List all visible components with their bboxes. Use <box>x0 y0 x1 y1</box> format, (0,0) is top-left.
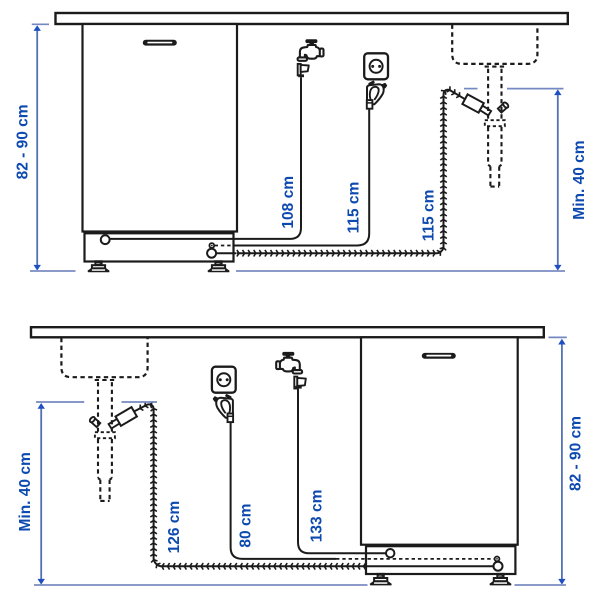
svg-text:82 - 90 cm: 82 - 90 cm <box>568 416 585 491</box>
svg-text:Min. 40 cm: Min. 40 cm <box>571 140 588 219</box>
svg-text:115 cm: 115 cm <box>421 190 438 242</box>
svg-text:80 cm: 80 cm <box>238 504 255 548</box>
svg-text:126 cm: 126 cm <box>166 501 183 554</box>
svg-text:115 cm: 115 cm <box>346 182 363 234</box>
svg-text:108 cm: 108 cm <box>280 176 297 229</box>
svg-text:82 - 90 cm: 82 - 90 cm <box>15 104 32 179</box>
svg-text:Min. 40 cm: Min. 40 cm <box>17 452 34 531</box>
svg-text:133 cm: 133 cm <box>309 490 326 543</box>
